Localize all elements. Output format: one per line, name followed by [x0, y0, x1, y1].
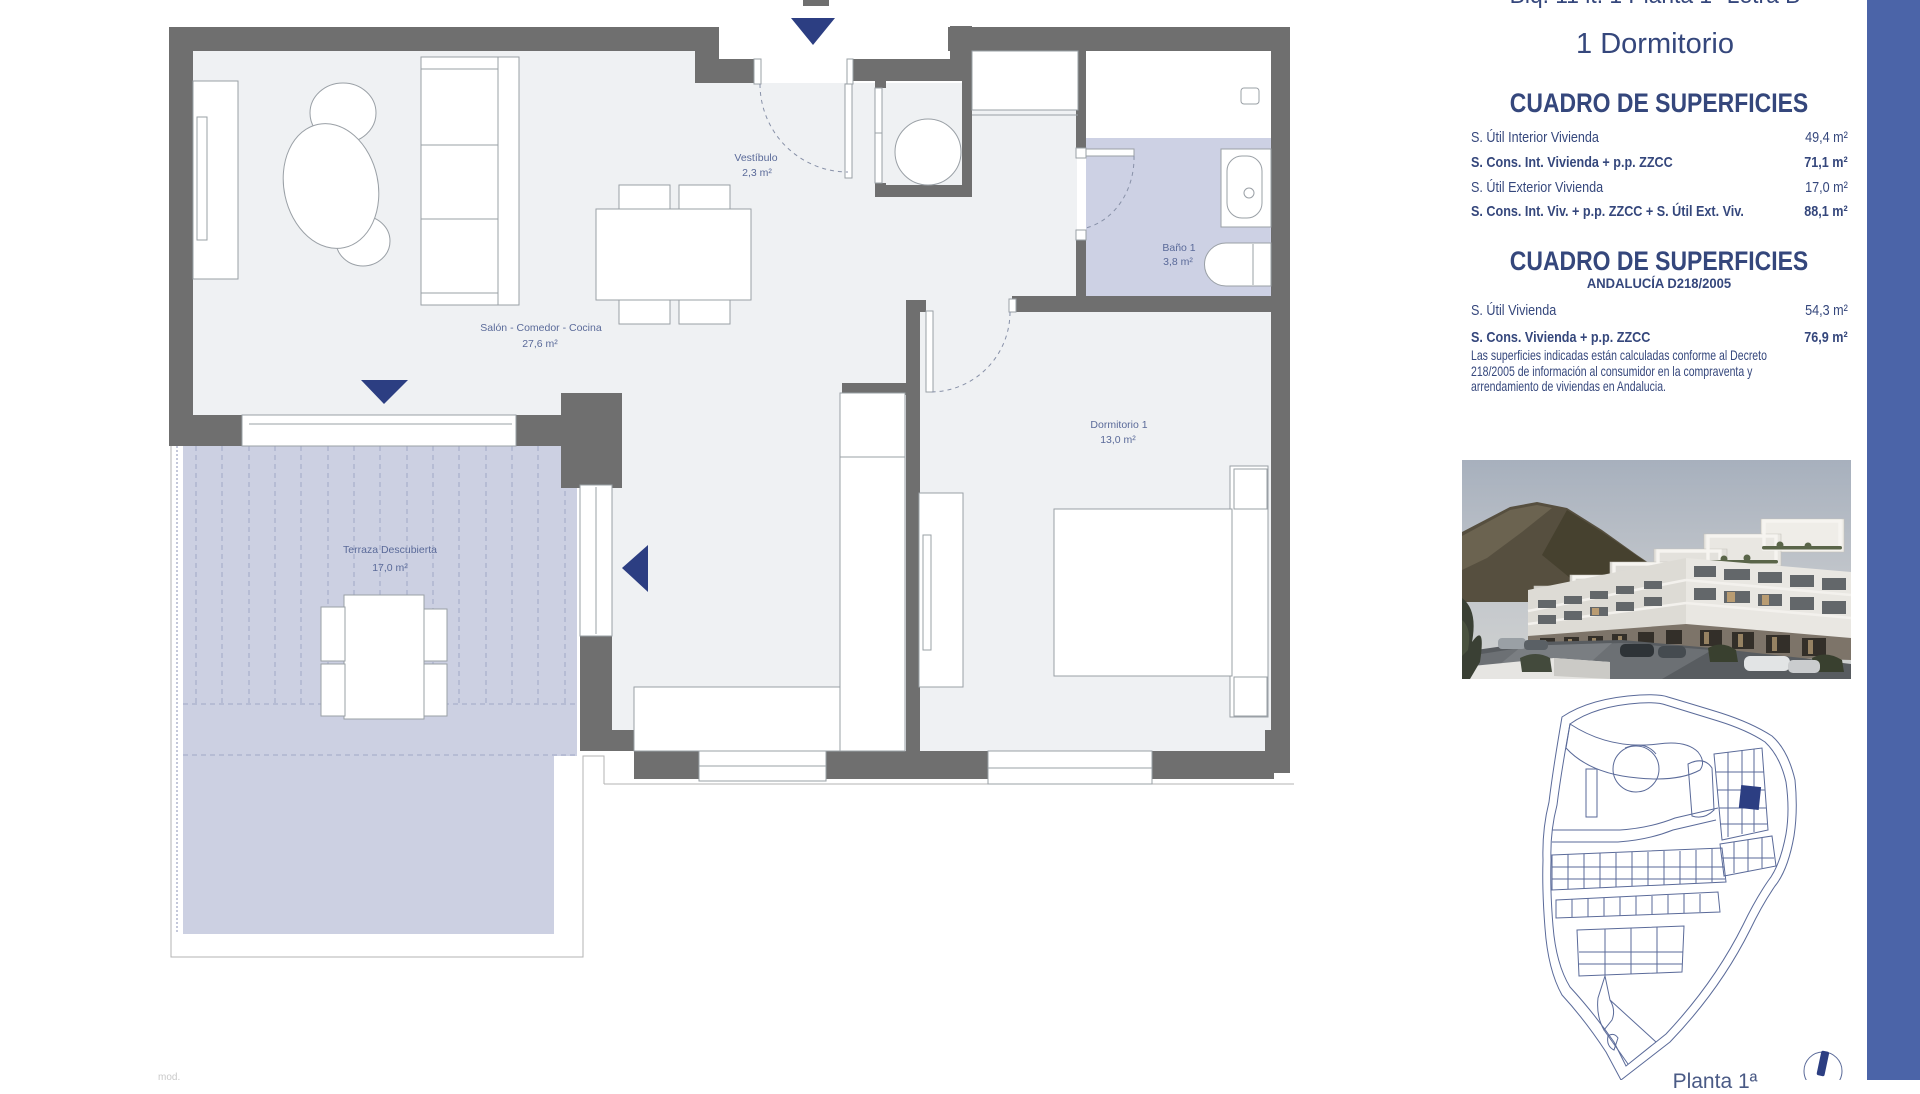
svg-text:Terraza Descubierta: Terraza Descubierta	[343, 544, 437, 556]
svg-text:Baño 1: Baño 1	[1162, 242, 1195, 254]
svg-text:Salón - Comedor - Cocina: Salón - Comedor - Cocina	[480, 322, 602, 334]
svg-text:3,8 m²: 3,8 m²	[1163, 256, 1193, 268]
svg-text:2,3 m²: 2,3 m²	[742, 167, 772, 179]
svg-text:Dormitorio 1: Dormitorio 1	[1090, 419, 1147, 431]
svg-text:Vestíbulo: Vestíbulo	[734, 152, 777, 164]
svg-text:13,0 m²: 13,0 m²	[1100, 434, 1136, 446]
svg-text:27,6 m²: 27,6 m²	[522, 338, 558, 350]
svg-text:17,0 m²: 17,0 m²	[372, 562, 408, 574]
